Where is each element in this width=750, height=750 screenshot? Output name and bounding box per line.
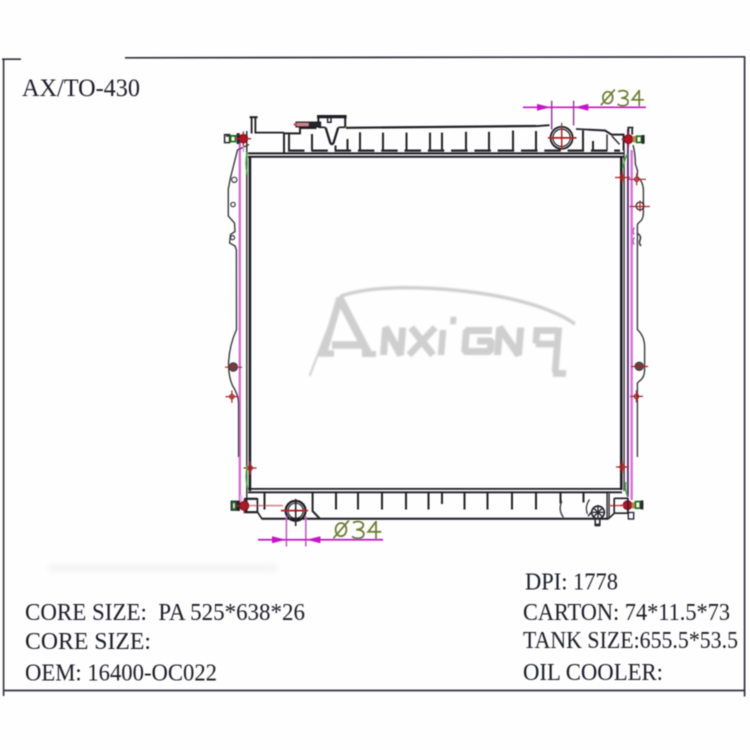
svg-text:CORE SIZE:: CORE SIZE: [25,629,151,655]
svg-text:TANK SIZE:655.5*53.5: TANK SIZE:655.5*53.5 [523,628,738,654]
svg-text:DPI: 1778: DPI: 1778 [525,570,618,596]
svg-text:OEM: 16400-OC022: OEM: 16400-OC022 [25,661,217,687]
svg-text:OIL COOLER:: OIL COOLER: [523,660,663,686]
svg-text:CARTON: 74*11.5*73: CARTON: 74*11.5*73 [523,600,730,626]
svg-text:AX/TO-430: AX/TO-430 [22,75,140,102]
svg-text:CORE SIZE: PA 525*638*26: CORE SIZE: PA 525*638*26 [25,600,305,626]
